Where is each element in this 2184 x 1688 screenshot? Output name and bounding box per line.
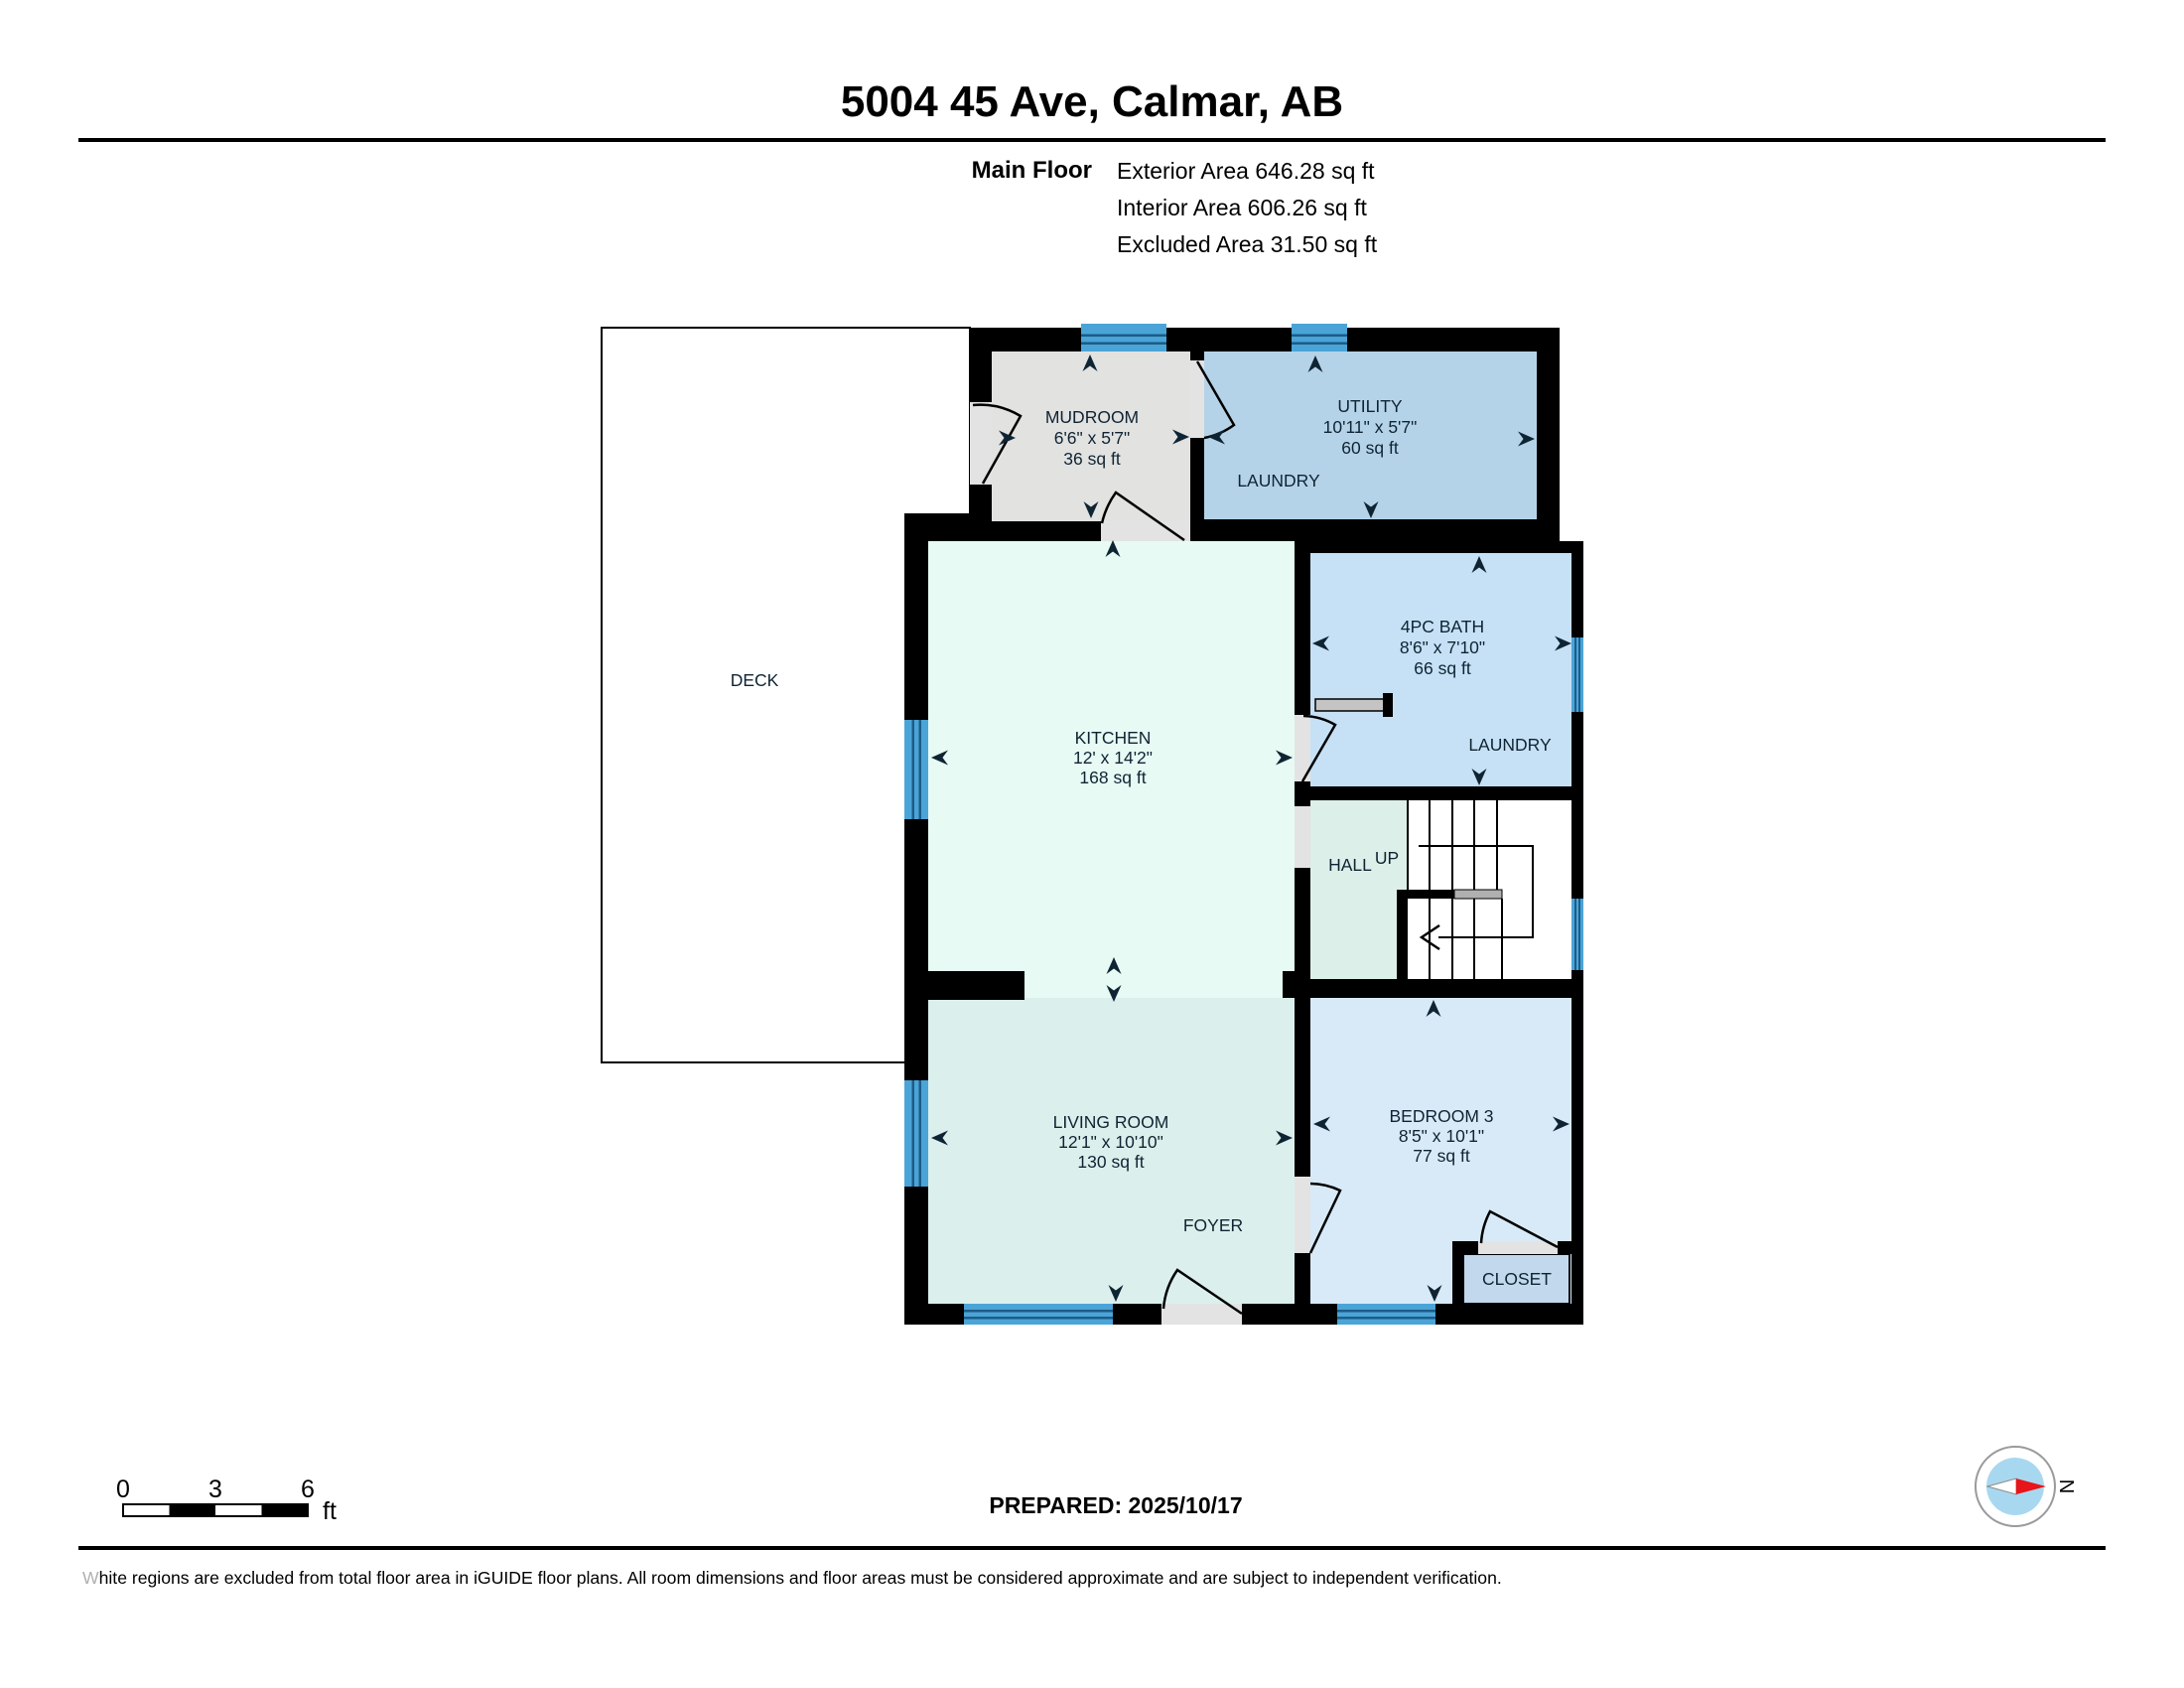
svg-text:BEDROOM 3: BEDROOM 3 [1389, 1106, 1493, 1126]
svg-text:Excluded Area 31.50 sq ft: Excluded Area 31.50 sq ft [1117, 231, 1378, 257]
svg-text:4PC BATH: 4PC BATH [1401, 617, 1484, 636]
svg-text:UTILITY: UTILITY [1337, 396, 1402, 416]
svg-text:168 sq ft: 168 sq ft [1079, 768, 1146, 787]
svg-text:6'6" x 5'7": 6'6" x 5'7" [1054, 428, 1131, 448]
svg-text:130 sq ft: 130 sq ft [1077, 1152, 1144, 1172]
svg-text:6: 6 [301, 1476, 315, 1503]
svg-text:3: 3 [208, 1476, 222, 1503]
svg-text:0: 0 [116, 1476, 130, 1503]
svg-text:Exterior Area 646.28 sq ft: Exterior Area 646.28 sq ft [1117, 158, 1375, 184]
svg-text:Interior Area 606.26 sq ft: Interior Area 606.26 sq ft [1117, 195, 1367, 220]
svg-text:DECK: DECK [731, 670, 779, 690]
svg-text:White regions are excluded fro: White regions are excluded from total fl… [82, 1568, 1502, 1588]
svg-text:12' x 14'2": 12' x 14'2" [1073, 748, 1153, 768]
svg-text:12'1" x 10'10": 12'1" x 10'10" [1058, 1132, 1163, 1152]
svg-text:8'6" x 7'10": 8'6" x 7'10" [1400, 637, 1485, 657]
svg-text:ft: ft [323, 1497, 337, 1525]
svg-text:36 sq ft: 36 sq ft [1063, 449, 1121, 469]
svg-text:HALL: HALL [1328, 855, 1372, 875]
svg-text:60 sq ft: 60 sq ft [1341, 438, 1399, 458]
svg-text:N: N [2055, 1479, 2077, 1493]
svg-text:77 sq ft: 77 sq ft [1413, 1146, 1470, 1166]
svg-text:5004 45 Ave, Calmar, AB: 5004 45 Ave, Calmar, AB [841, 77, 1343, 126]
svg-text:FOYER: FOYER [1183, 1215, 1243, 1235]
svg-text:KITCHEN: KITCHEN [1075, 728, 1152, 748]
svg-text:PREPARED: 2025/10/17: PREPARED: 2025/10/17 [989, 1492, 1242, 1518]
svg-text:MUDROOM: MUDROOM [1045, 407, 1139, 427]
svg-text:LIVING ROOM: LIVING ROOM [1053, 1112, 1169, 1132]
svg-text:66 sq ft: 66 sq ft [1414, 658, 1471, 678]
svg-text:8'5" x 10'1": 8'5" x 10'1" [1399, 1126, 1484, 1146]
svg-text:Main Floor: Main Floor [972, 157, 1092, 184]
svg-text:10'11" x 5'7": 10'11" x 5'7" [1323, 417, 1418, 437]
svg-text:LAUNDRY: LAUNDRY [1237, 471, 1320, 491]
svg-text:UP: UP [1375, 848, 1399, 868]
svg-text:LAUNDRY: LAUNDRY [1468, 735, 1552, 755]
svg-text:CLOSET: CLOSET [1482, 1269, 1552, 1289]
